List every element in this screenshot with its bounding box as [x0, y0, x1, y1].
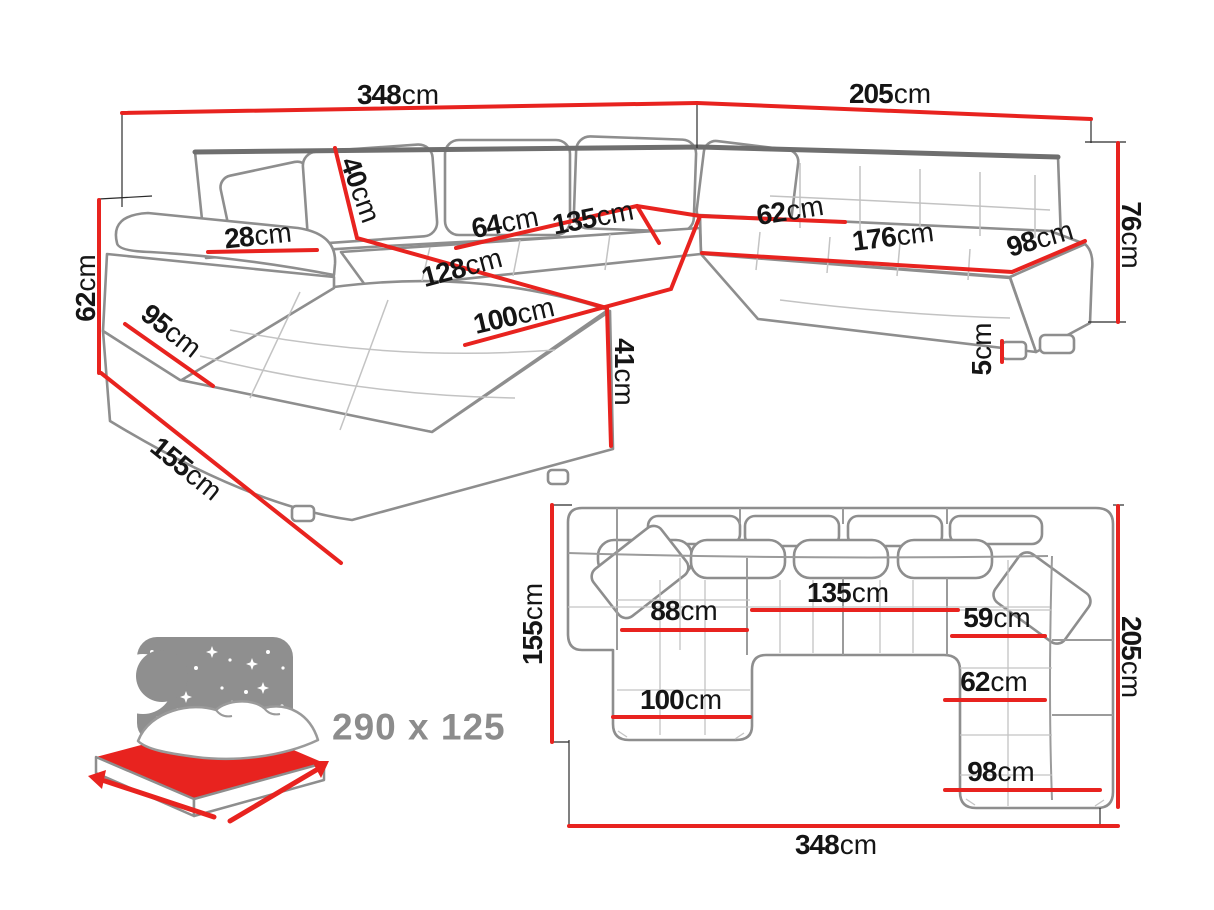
dim-plan-155: 155cm [519, 583, 547, 665]
dim-value: 41 [609, 338, 640, 367]
dim-unit: cm [70, 254, 101, 291]
dim-perspective-348: 348cm [357, 81, 439, 109]
dim-unit: cm [517, 583, 548, 620]
dim-unit: cm [852, 577, 889, 608]
dim-value: 76 [1116, 201, 1147, 230]
dim-unit: cm [990, 666, 1027, 697]
dim-value: 348 [795, 829, 839, 860]
dim-value: 205 [849, 78, 893, 109]
dim-perspective-5: 5cm [968, 323, 996, 376]
dim-value: 98 [967, 756, 996, 787]
dim-unit: cm [840, 829, 877, 860]
dim-unit: cm [685, 684, 722, 715]
dim-plan-100: 100cm [640, 686, 722, 714]
dim-value: 176 [850, 221, 897, 257]
dim-plan-348: 348cm [795, 831, 877, 859]
sofa-dimension-diagram: 348cm 205cm 76cm 40cm 28cm 62cm 95cm 155… [0, 0, 1214, 910]
dim-unit: cm [253, 217, 293, 252]
dim-plan-135: 135cm [807, 579, 889, 607]
dim-unit: cm [966, 323, 997, 360]
dim-unit: cm [993, 602, 1030, 633]
dim-value: 28 [223, 221, 255, 255]
dim-perspective-62-left: 62cm [72, 254, 100, 321]
dim-value: 88 [650, 595, 679, 626]
dim-value: 64 [469, 208, 504, 244]
dim-value: 59 [963, 602, 992, 633]
dim-value: 348 [357, 79, 401, 110]
dim-unit: cm [402, 79, 439, 110]
perspective-sofa-drawing [103, 136, 1092, 521]
dim-value: 135 [807, 577, 851, 608]
dim-value: 5 [966, 361, 997, 376]
sleeping-area-size-label: 290 x 125 [332, 709, 506, 746]
dim-unit: cm [680, 595, 717, 626]
dim-value: 100 [640, 684, 684, 715]
dim-plan-59: 59cm [963, 604, 1030, 632]
dim-unit: cm [784, 190, 826, 226]
dim-plan-98: 98cm [967, 758, 1034, 786]
dim-perspective-76: 76cm [1117, 201, 1145, 268]
dim-value: 62 [960, 666, 989, 697]
dim-unit: cm [895, 216, 936, 251]
dim-unit: cm [894, 78, 931, 109]
dim-value: 205 [1116, 616, 1147, 660]
dim-unit: cm [1116, 231, 1147, 268]
dim-unit: cm [997, 756, 1034, 787]
dim-unit: cm [609, 368, 640, 405]
dim-unit: cm [1116, 661, 1147, 698]
dim-perspective-28: 28cm [223, 219, 293, 254]
dim-perspective-205: 205cm [849, 80, 931, 108]
dim-value: 62 [70, 293, 101, 322]
dim-value: 155 [517, 621, 548, 665]
sofa-bed-shape [96, 701, 324, 816]
dim-plan-205: 205cm [1117, 616, 1145, 698]
dim-perspective-41: 41cm [610, 338, 638, 405]
dim-plan-88: 88cm [650, 597, 717, 625]
bed-icon [88, 637, 329, 821]
dim-value: 62 [754, 196, 788, 231]
dim-plan-62: 62cm [960, 668, 1027, 696]
